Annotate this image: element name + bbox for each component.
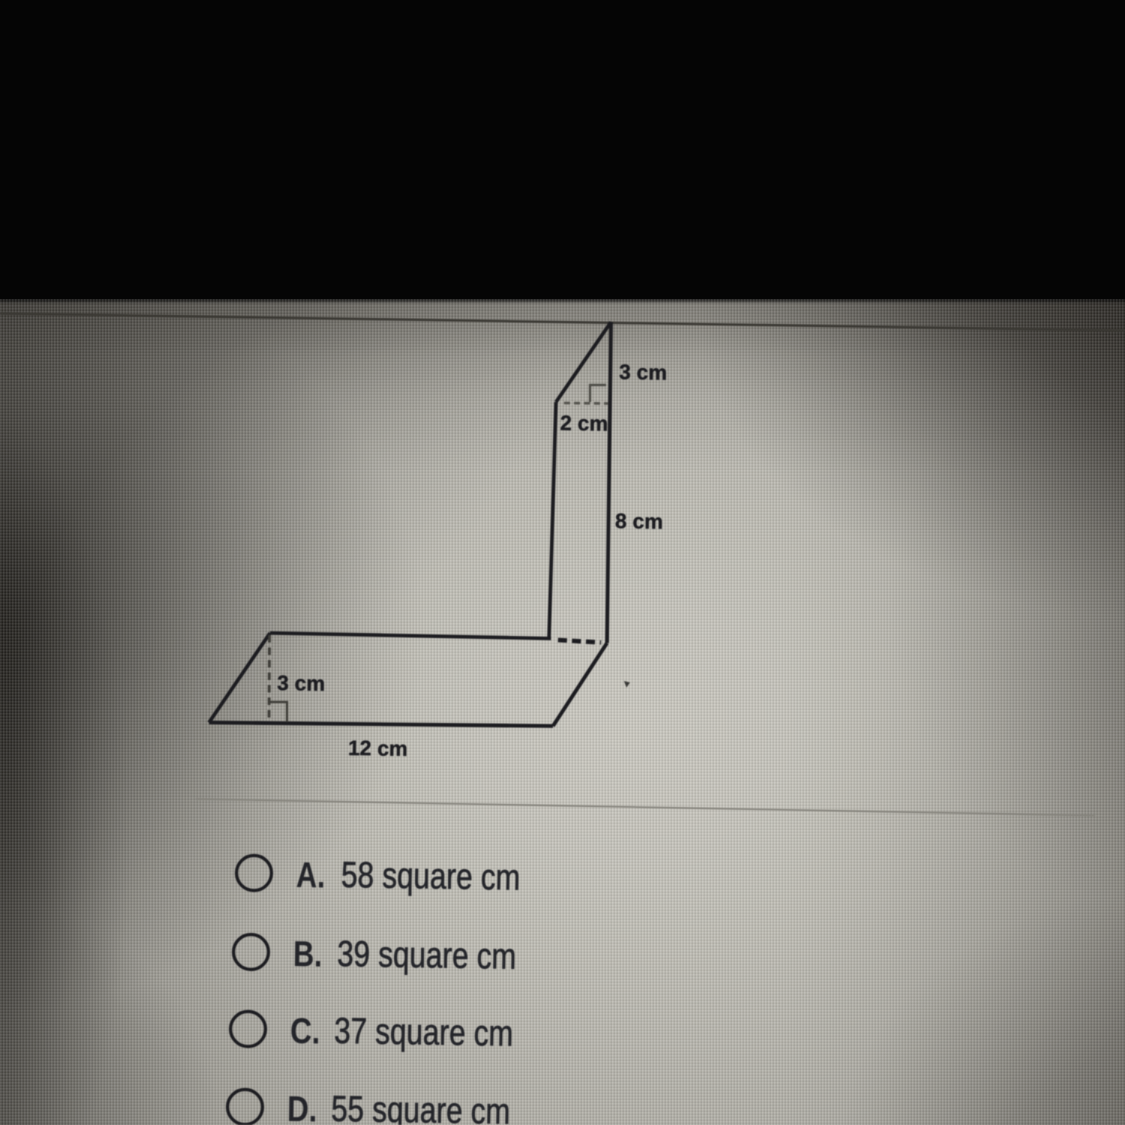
svg-text:58 square cm: 58 square cm (341, 854, 521, 898)
svg-text:B.: B. (293, 933, 323, 974)
svg-text:A.: A. (296, 854, 326, 895)
svg-text:12 cm: 12 cm (348, 737, 408, 761)
svg-text:C.: C. (290, 1010, 321, 1051)
svg-text:3 cm: 3 cm (619, 361, 667, 385)
svg-text:37 square cm: 37 square cm (334, 1010, 514, 1054)
svg-text:39 square cm: 39 square cm (337, 933, 517, 977)
svg-text:55 square cm: 55 square cm (331, 1088, 511, 1125)
svg-text:2 cm: 2 cm (560, 412, 608, 436)
svg-text:3 cm: 3 cm (277, 672, 325, 696)
svg-text:8 cm: 8 cm (615, 510, 663, 534)
svg-text:D.: D. (287, 1088, 318, 1125)
